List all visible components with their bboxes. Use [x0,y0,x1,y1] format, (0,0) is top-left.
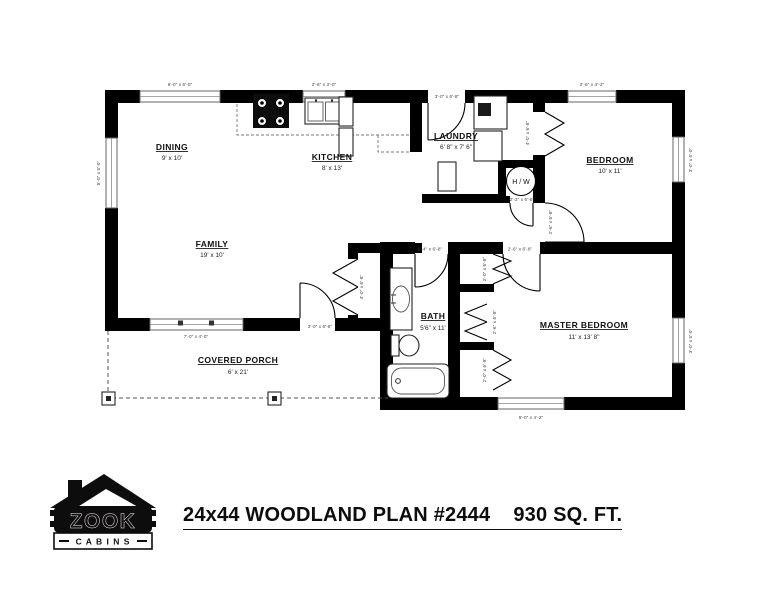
bedroom-top-window [568,91,616,102]
bathtub [387,364,449,398]
water-heater-door [510,203,533,226]
kitchen-sink [305,98,343,124]
floor-plan-page: H / W DINING 9' x 10' KITCHEN 8' x 1 [0,0,768,593]
range [253,94,289,128]
dim-water-heater-door: 2'-2" x 6'-8" [510,197,535,202]
kitchen-fixtures [237,94,410,156]
dim-laundry-door: 3'-0" x 6'-8" [435,94,460,99]
floor-plan-drawing: H / W DINING 9' x 10' KITCHEN 8' x 1 [0,0,768,470]
porch-post [268,392,281,405]
plan-title: 24x44 WOODLAND PLAN #2444 930 SQ. FT. [183,504,622,530]
dryer [474,131,502,161]
washer [474,96,507,129]
room-dims-family: 19' x 10' [200,252,224,259]
dim-master-right-window: 3'-0" x 5'-0" [688,329,693,354]
porch-entry-door [300,283,335,318]
room-dims-bedroom: 10' x 11' [598,168,621,175]
room-label-laundry: LAUNDRY [434,131,478,141]
room-label-porch: COVERED PORCH [198,355,278,365]
room-label-dining: DINING [156,142,188,152]
room-dims-porch: 6' x 21' [228,369,248,376]
room-label-master: MASTER BEDROOM [540,320,628,330]
dim-bedroom-top-window: 2'-6" x 4'-2" [580,82,605,87]
dim-kitchen-window: 2'-6" x 3'-0" [312,82,337,87]
dining-window [140,91,220,102]
master-closet-bifold-3 [493,350,511,390]
dim-master-closet-2: 2'-6" x 6'-8" [492,310,497,335]
porch-post [102,392,115,405]
logo-log-band: ZOOK [50,506,156,533]
logo-sub-text: C A B I N S [76,537,131,547]
room-dims-master: 11' x 13' 8" [568,334,600,341]
dim-left-window: 5'-0" x 5'-0" [96,161,101,186]
dim-dining-window: 6'-0" x 6'-0" [168,82,193,87]
room-label-family: FAMILY [196,239,229,249]
master-bottom-window [498,398,564,409]
logo-cabins-band: C A B I N S [54,533,152,549]
dim-master-door: 2'-6" x 6'-8" [508,247,533,252]
dim-family-window: 7'-0" x 4'-0" [184,334,209,339]
laundry-cabinet [438,162,456,191]
dim-master-closet-1: 2'-0" x 6'-8" [482,257,487,282]
toilet [391,335,419,356]
covered-porch-outline [102,331,388,405]
logo-brand-text: ZOOK [70,510,137,533]
dim-family-closet: 4'-0" x 6'-8" [359,275,364,300]
room-label-bath: BATH [421,311,446,321]
dim-master-closet-3: 2'-0" x 6'-8" [482,358,487,383]
room-dims-bath: 5'6" x 11' [420,325,446,332]
bath-fixtures [387,268,449,398]
walls [105,90,685,410]
master-closet-doors-2 [465,304,487,340]
bedroom-right-window [673,137,684,182]
logo-roof-icon [50,474,156,508]
master-closet-bifold-1 [493,254,511,284]
dim-porch-door: 3'-0" x 6'-8" [308,324,333,329]
dim-bedroom-door: 2'-6" x 6'-8" [548,210,553,235]
bath-door [415,254,448,287]
family-closet-doors [333,259,358,315]
dim-bedroom-closet: 4'-0" x 6'-8" [525,121,530,146]
water-heater: H / W [507,167,536,196]
master-right-window [673,318,684,363]
dim-master-bottom-window: 5'-0" x 4'-2" [519,415,544,420]
room-label-kitchen: KITCHEN [312,152,353,162]
family-slider-window [150,319,243,330]
dining-left-window [106,138,117,208]
dim-bedroom-right-window: 3'-0" x 5'-0" [688,148,693,173]
bedroom-closet-bifold [545,112,564,156]
refrigerator [339,97,353,156]
room-dims-dining: 9' x 10' [162,155,182,162]
room-dims-laundry: 6' 8" x 7' 6" [440,144,473,151]
room-dims-kitchen: 8' x 13' [322,165,342,172]
room-label-bedroom: BEDROOM [586,155,633,165]
zook-cabins-logo: ZOOK C A B I N S [50,474,160,554]
vanity-sink [390,268,412,330]
dim-bath-door: 2'-4" x 6'-8" [418,247,443,252]
water-heater-label: H / W [512,179,530,186]
